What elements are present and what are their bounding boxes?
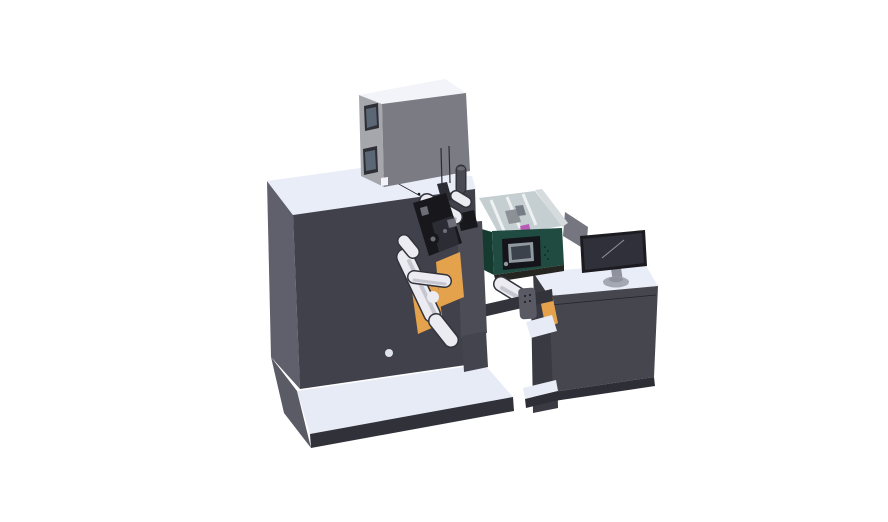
monitor-stand-base-top (609, 277, 623, 283)
mechanism-knob-center (431, 237, 436, 242)
printer-vent-dot (547, 250, 549, 252)
control-box (359, 79, 470, 189)
roller-stub (456, 196, 466, 202)
pendant-button (529, 300, 531, 302)
box-foot-pad (381, 177, 388, 186)
printer-vent-dot (547, 258, 549, 260)
box-window-glass (365, 150, 376, 171)
cabinet-shaft-hole (385, 349, 393, 357)
roller-stub (404, 241, 413, 252)
control-pendant (518, 287, 537, 319)
desk-front-face (549, 286, 658, 392)
box-window-glass (366, 107, 377, 128)
machine-3d-render (0, 0, 888, 522)
status-cylinder-cap (457, 167, 465, 171)
plate-lower-column (462, 331, 488, 372)
printer-vent-dot (544, 246, 546, 248)
panel-screen (511, 245, 531, 260)
top-fastener-dot (418, 193, 421, 196)
cad-viewport (0, 0, 888, 522)
pendant-button (524, 295, 526, 297)
panel-knob (504, 262, 508, 266)
printer-vent-dot (544, 254, 546, 256)
roller-end-cap (427, 291, 439, 303)
pendant-button (524, 301, 526, 303)
pendant-button (529, 294, 531, 296)
mechanism-bolt (443, 229, 447, 233)
